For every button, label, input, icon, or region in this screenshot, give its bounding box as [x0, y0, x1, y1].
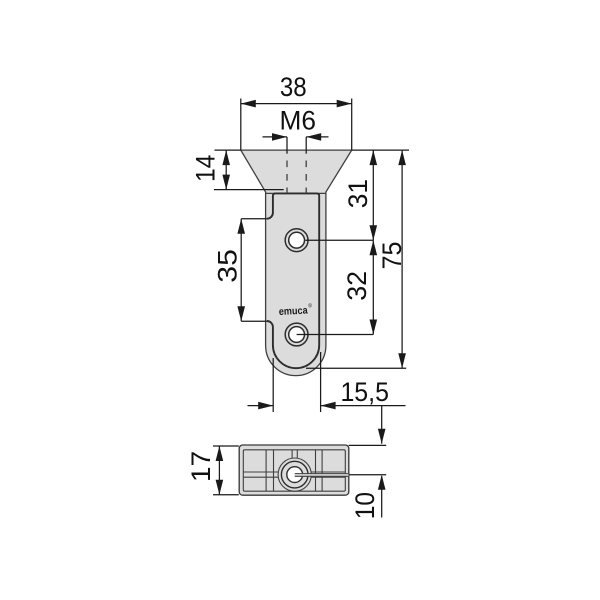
svg-text:M6: M6 [279, 105, 316, 135]
svg-text:emuca: emuca [279, 305, 309, 318]
svg-text:®: ® [308, 302, 312, 309]
svg-text:32: 32 [342, 271, 372, 301]
svg-text:38: 38 [280, 72, 307, 102]
svg-text:15,5: 15,5 [340, 377, 389, 407]
svg-text:17: 17 [186, 451, 216, 482]
svg-text:35: 35 [212, 249, 242, 283]
svg-text:14: 14 [191, 155, 221, 183]
svg-text:10: 10 [350, 492, 380, 519]
svg-text:31: 31 [343, 179, 373, 208]
